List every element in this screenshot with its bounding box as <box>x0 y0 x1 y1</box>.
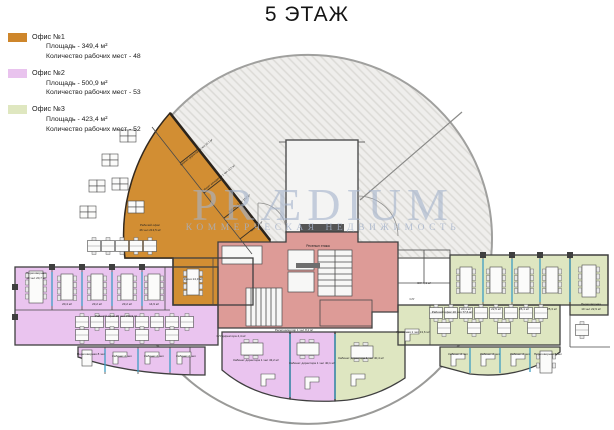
legend-office2-area: Площадь - 500,9 м² <box>46 79 141 89</box>
reception-desk <box>296 263 320 268</box>
room-label: Ресепшн этажа <box>306 244 330 248</box>
room-label: Кабинет 2 чел <box>176 354 196 358</box>
desk-bench <box>102 238 115 255</box>
room-label: Ресепшн/копир 1 чел 8,2 м² <box>275 328 313 332</box>
legend-swatch-office3 <box>8 105 27 114</box>
room-label: Переговорная <box>26 271 46 275</box>
room-label: Кабинет директора 1 чел 43,2 м² <box>233 358 278 362</box>
room-label: Переговорная <box>581 302 601 306</box>
room-label: С/У 4,1 м² <box>417 281 431 285</box>
kitchen-table <box>183 269 202 296</box>
room-label: Переговорная 6 чел <box>534 352 562 356</box>
room-label: Рабочий офис <box>140 223 160 227</box>
legend-office1-area: Площадь - 349,4 м² <box>46 42 141 52</box>
room-label: Кабинет директора 1 чел 40,4 м² <box>338 356 383 360</box>
meeting-table <box>117 274 136 301</box>
desk-bench <box>88 238 101 255</box>
legend-office3-area: Площадь - 423,4 м² <box>46 115 141 125</box>
legend-swatch-office2 <box>8 69 27 78</box>
desk-cluster <box>102 154 118 166</box>
meeting-table <box>456 267 475 294</box>
room-label: 20,4 м² <box>62 302 72 306</box>
meeting-table <box>514 267 533 294</box>
legend-office3-seats: Количество рабочих мест - 52 <box>46 125 141 135</box>
stairs-b <box>246 288 282 326</box>
desk-cluster <box>89 180 105 192</box>
legend: Офис №1 Площадь - 349,4 м² Количество ра… <box>8 32 141 140</box>
room-label: 22,5 м² <box>491 307 501 311</box>
legend-office1-label: Офис №1 <box>32 32 141 42</box>
room-label: Приемная 1 чел 13,6 м² <box>397 330 430 334</box>
meeting-table <box>578 265 599 297</box>
room-label: Кабинет 2 чел <box>448 352 468 356</box>
room-label: 10 чел 22,9 м² <box>581 307 601 311</box>
swatch-color <box>8 105 27 114</box>
stairs-a <box>318 250 352 296</box>
legend-office3-label: Офис №3 <box>32 104 141 114</box>
core-room <box>222 246 262 264</box>
swatch-color <box>8 69 27 78</box>
meeting-table <box>542 267 561 294</box>
floor-plan-page: 5 ЭТАЖ Офис №1 Площадь - 349,4 м² Количе… <box>0 0 614 430</box>
room-label: 10 чел 20,7 м² <box>26 276 46 280</box>
legend-swatch-office1 <box>8 33 27 42</box>
legend-office2-label: Офис №2 <box>32 68 141 78</box>
room-label: 23,2 м² <box>92 302 102 306</box>
room-label: С/У <box>410 297 415 301</box>
room-label: 25,3 м² <box>547 307 557 311</box>
room-label: Кухня 14,3 м² <box>184 277 203 281</box>
room-label: 23,2 м² <box>122 302 132 306</box>
room-label: Рабочий офис 20 чел 77,6 м² <box>432 310 472 314</box>
room-label: Кабинет 2 чел <box>144 354 164 358</box>
room-label: Рабочий офис 26 чел 150,9 м² <box>95 314 137 318</box>
legend-office2-seats: Количество рабочих мест - 53 <box>46 88 141 98</box>
elevator-cell <box>288 272 314 292</box>
room-label: 14,9 м² <box>149 302 159 306</box>
room-label: Кабинет 2 чел <box>112 354 132 358</box>
legend-item-office1: Офис №1 Площадь - 349,4 м² Количество ра… <box>8 32 141 62</box>
legend-item-office2: Офис №2 Площадь - 500,9 м² Количество ра… <box>8 68 141 98</box>
legend-item-office3: Офис №3 Площадь - 423,4 м² Количество ра… <box>8 104 141 134</box>
meeting-table <box>87 274 106 301</box>
desk-bench <box>576 322 589 339</box>
room-label: Кабинет 2 чел <box>480 352 500 356</box>
room-label: С/У директора 4,4 м² <box>216 334 245 338</box>
room-label: Кабинет 2 чел <box>510 352 530 356</box>
legend-office1-seats: Количество рабочих мест - 48 <box>46 52 141 62</box>
room-label: 46 чел 213,5 м² <box>139 228 160 232</box>
elevator-shaft <box>279 140 365 233</box>
meeting-table <box>57 274 76 301</box>
room-label: Кабинет директора 1 чел 40,1 м² <box>289 361 334 365</box>
desk-cluster <box>128 201 144 213</box>
meeting-table <box>144 274 163 301</box>
swatch-color <box>8 33 27 42</box>
meeting-table <box>486 267 505 294</box>
room-label: 26,1 м² <box>519 307 529 311</box>
office3-director-room <box>335 332 405 401</box>
desk-cluster <box>80 206 96 218</box>
room-label: Переговорная 8 чел <box>77 352 105 356</box>
desk-cluster <box>112 178 128 190</box>
